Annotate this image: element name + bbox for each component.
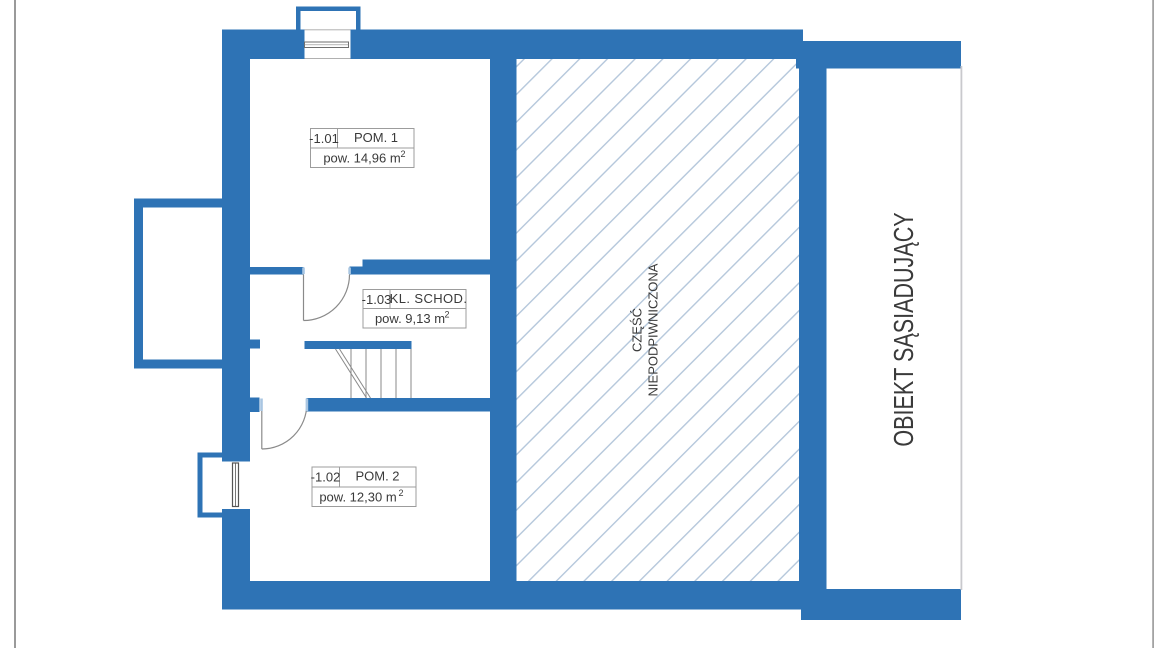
- svg-text:2: 2: [398, 488, 403, 498]
- svg-text:2: 2: [400, 149, 405, 159]
- svg-text:-1.01: -1.01: [309, 131, 339, 146]
- svg-text:-1.03: -1.03: [362, 292, 392, 307]
- svg-text:POM. 1: POM. 1: [354, 130, 398, 145]
- svg-text:CZĘŚĆ: CZĘŚĆ: [630, 308, 645, 352]
- svg-text:pow. 14,96 m: pow. 14,96 m: [323, 151, 400, 166]
- svg-text:pow. 12,30 m: pow. 12,30 m: [319, 490, 396, 505]
- svg-text:NIEPODPIWNICZONA: NIEPODPIWNICZONA: [646, 263, 661, 396]
- svg-text:2: 2: [444, 310, 449, 320]
- svg-text:OBIEKT SĄSIADUJĄCY: OBIEKT SĄSIADUJĄCY: [888, 212, 919, 447]
- svg-text:KL. SCHOD.: KL. SCHOD.: [390, 291, 468, 306]
- svg-text:POM. 2: POM. 2: [355, 469, 399, 484]
- svg-text:pow. 9,13 m: pow. 9,13 m: [375, 311, 445, 326]
- svg-text:-1.02: -1.02: [311, 470, 341, 485]
